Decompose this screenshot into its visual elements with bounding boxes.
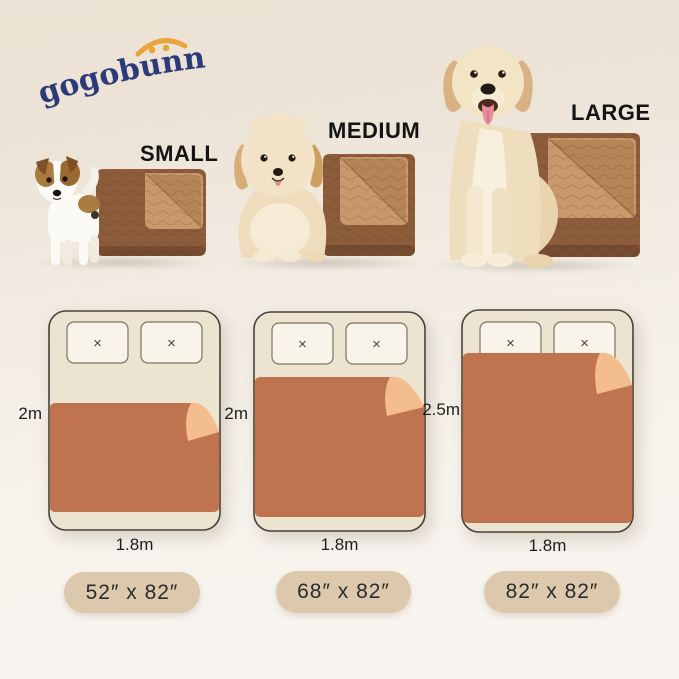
bed-diagram-large: × × — [461, 309, 634, 533]
medium-dog-illustration — [224, 110, 342, 262]
large-dog-illustration — [422, 28, 562, 268]
pillow-stitch-icon: × — [298, 336, 307, 353]
dog-eye — [288, 154, 295, 161]
dog-eye — [498, 70, 506, 78]
pillow-stitch-icon: × — [506, 335, 515, 352]
bed-length-label-small: 2m — [8, 404, 42, 424]
dog-nose — [53, 190, 61, 196]
brand-logo: gogobunny — [26, 30, 226, 122]
size-label-small: SMALL — [140, 141, 218, 167]
size-badge-medium: 68″ x 82″ — [276, 571, 411, 613]
size-badge-small: 52″ x 82″ — [64, 572, 200, 613]
dog-nose — [273, 168, 283, 176]
dog-eye — [470, 70, 478, 78]
bed-length-label-large: 2.5m — [416, 400, 460, 420]
size-badge-large: 82″ x 82″ — [484, 571, 620, 613]
dog-eye — [260, 154, 267, 161]
pillow-stitch-icon: × — [580, 335, 589, 352]
product-size-infographic: gogobunny SMALL MEDIUM LARGE — [0, 0, 679, 679]
small-blanket-photo — [95, 168, 207, 257]
bed-width-label-large: 1.8m — [461, 536, 634, 556]
bed-width-label-medium: 1.8m — [253, 535, 426, 555]
pillow-stitch-icon: × — [93, 335, 102, 352]
dog-nose — [481, 84, 496, 95]
dog-eye — [62, 176, 67, 181]
bed-diagram-small: × × — [48, 310, 221, 531]
dog-eye — [46, 177, 51, 182]
size-label-large: LARGE — [571, 100, 651, 126]
bed-length-label-medium: 2m — [218, 404, 248, 424]
pillow-stitch-icon: × — [167, 335, 176, 352]
pillow-stitch-icon: × — [372, 336, 381, 353]
bed-diagram-medium: × × — [253, 311, 426, 532]
bed-width-label-small: 1.8m — [48, 535, 221, 555]
small-dog-illustration — [26, 152, 108, 270]
